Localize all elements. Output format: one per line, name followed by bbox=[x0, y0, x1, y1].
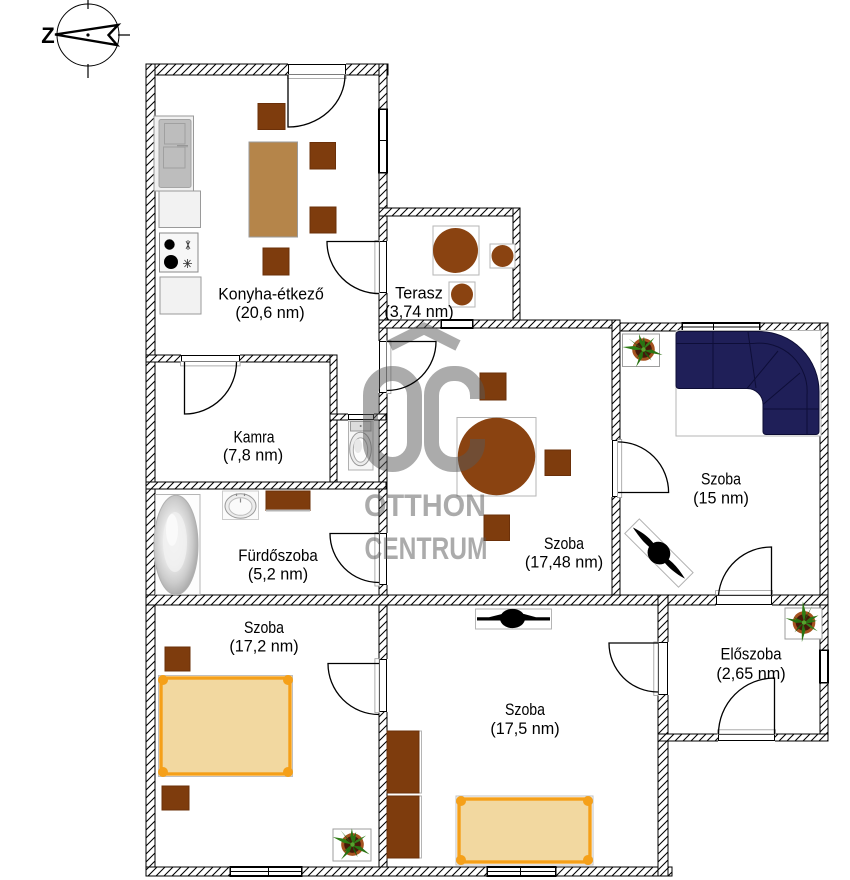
svg-text:Kamra: Kamra bbox=[234, 429, 275, 447]
svg-text:(2,65 nm): (2,65 nm) bbox=[716, 665, 785, 683]
svg-text:Szoba: Szoba bbox=[244, 619, 284, 637]
svg-text:Konyha-étkező: Konyha-étkező bbox=[218, 286, 324, 304]
svg-text:Terasz: Terasz bbox=[395, 285, 443, 303]
svg-text:CENTRUM: CENTRUM bbox=[365, 530, 488, 566]
svg-text:(15 nm): (15 nm) bbox=[693, 490, 749, 508]
svg-text:Szoba: Szoba bbox=[701, 471, 741, 489]
svg-text:Z: Z bbox=[41, 23, 54, 48]
svg-text:(17,48 nm): (17,48 nm) bbox=[525, 554, 603, 572]
svg-text:OTTHON: OTTHON bbox=[364, 487, 486, 523]
svg-text:Szoba: Szoba bbox=[544, 535, 584, 553]
svg-text:Fürdőszoba: Fürdőszoba bbox=[238, 547, 318, 565]
svg-text:(17,2 nm): (17,2 nm) bbox=[229, 638, 298, 656]
svg-text:Előszoba: Előszoba bbox=[721, 646, 782, 664]
svg-text:(7,8 nm): (7,8 nm) bbox=[223, 447, 283, 465]
svg-text:(17,5 nm): (17,5 nm) bbox=[490, 720, 559, 738]
svg-text:(5,2 nm): (5,2 nm) bbox=[248, 566, 308, 584]
svg-text:(3,74 nm): (3,74 nm) bbox=[384, 303, 453, 321]
svg-text:Szoba: Szoba bbox=[505, 701, 545, 719]
svg-text:(20,6 nm): (20,6 nm) bbox=[235, 304, 304, 322]
